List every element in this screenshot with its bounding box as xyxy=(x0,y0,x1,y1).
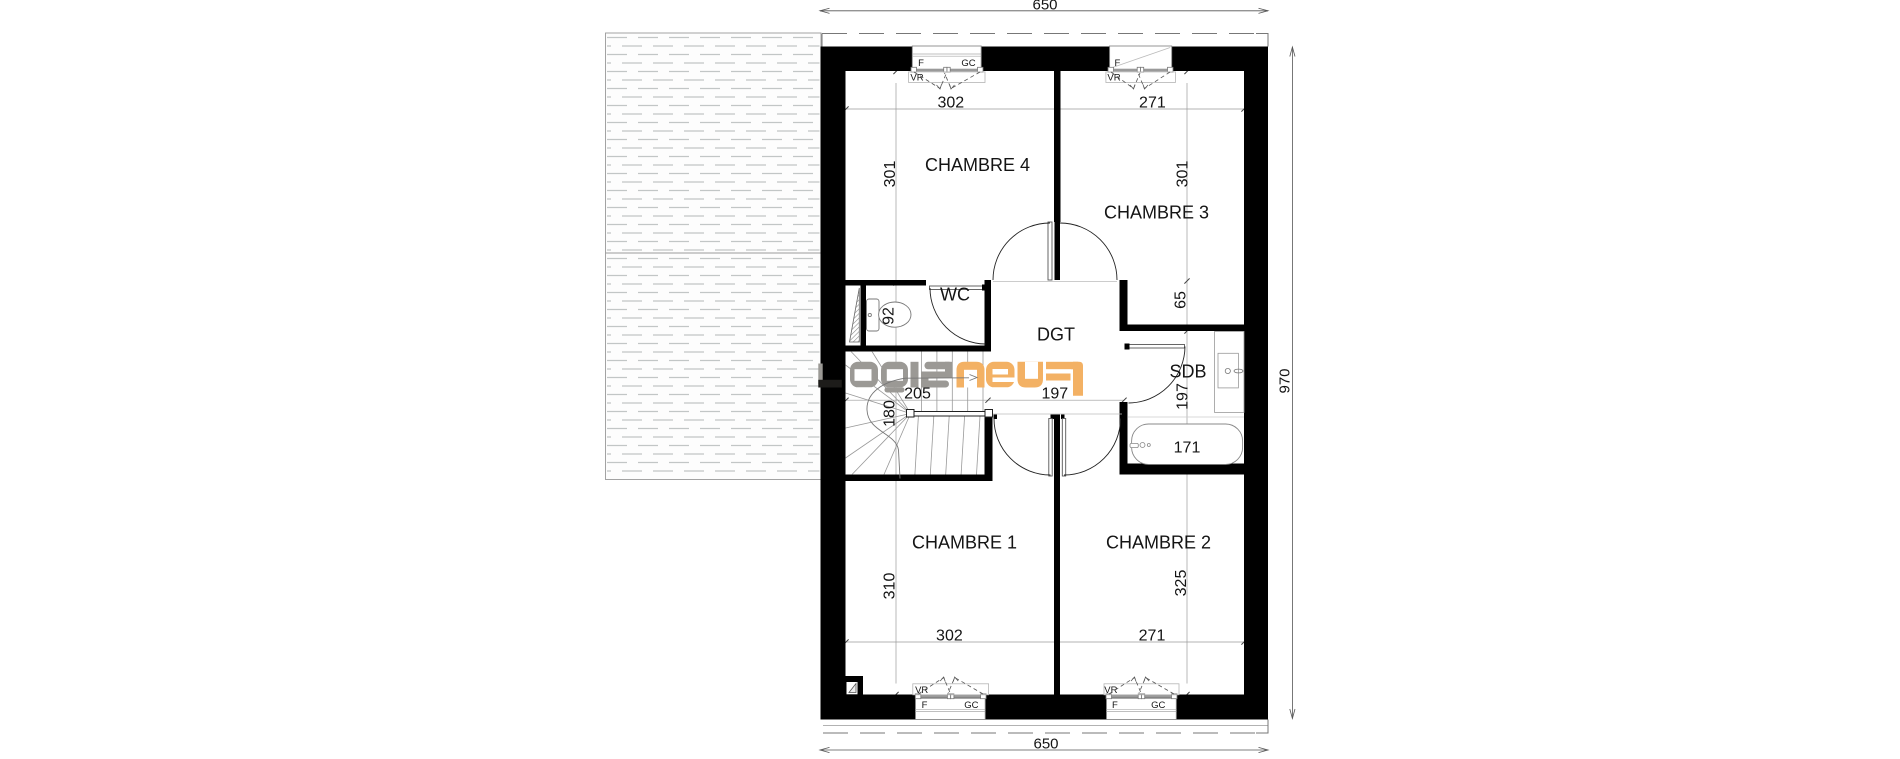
svg-text:F: F xyxy=(922,700,928,711)
svg-text:65: 65 xyxy=(1173,291,1190,309)
svg-text:271: 271 xyxy=(1139,95,1166,112)
svg-text:GC: GC xyxy=(964,700,978,711)
svg-text:325: 325 xyxy=(1173,570,1190,597)
svg-text:301: 301 xyxy=(882,161,899,188)
svg-text:F: F xyxy=(918,58,924,69)
svg-text:271: 271 xyxy=(1139,628,1166,645)
svg-text:171: 171 xyxy=(1174,440,1201,457)
svg-text:CHAMBRE 4: CHAMBRE 4 xyxy=(925,155,1030,175)
svg-text:197: 197 xyxy=(1175,383,1192,410)
svg-text:DGT: DGT xyxy=(1037,325,1075,345)
svg-text:310: 310 xyxy=(882,573,899,600)
svg-text:SDB: SDB xyxy=(1169,362,1206,382)
svg-text:F: F xyxy=(1114,58,1120,69)
svg-text:CHAMBRE 1: CHAMBRE 1 xyxy=(912,533,1017,553)
svg-text:301: 301 xyxy=(1175,161,1192,188)
svg-text:VR: VR xyxy=(1104,685,1117,696)
svg-text:VR: VR xyxy=(915,685,928,696)
svg-text:F: F xyxy=(1112,700,1118,711)
svg-text:650: 650 xyxy=(1033,736,1058,753)
svg-text:650: 650 xyxy=(1032,0,1057,14)
svg-text:970: 970 xyxy=(1277,368,1294,393)
svg-text:180: 180 xyxy=(882,400,899,427)
svg-text:302: 302 xyxy=(937,95,964,112)
svg-text:92: 92 xyxy=(881,307,898,325)
svg-text:GC: GC xyxy=(1151,700,1165,711)
svg-text:CHAMBRE 2: CHAMBRE 2 xyxy=(1106,533,1211,553)
svg-text:205: 205 xyxy=(904,386,931,403)
svg-text:GC: GC xyxy=(961,58,975,69)
svg-text:197: 197 xyxy=(1041,386,1068,403)
svg-text:302: 302 xyxy=(936,628,963,645)
svg-text:CHAMBRE 3: CHAMBRE 3 xyxy=(1104,203,1209,223)
svg-text:WC: WC xyxy=(940,285,970,305)
